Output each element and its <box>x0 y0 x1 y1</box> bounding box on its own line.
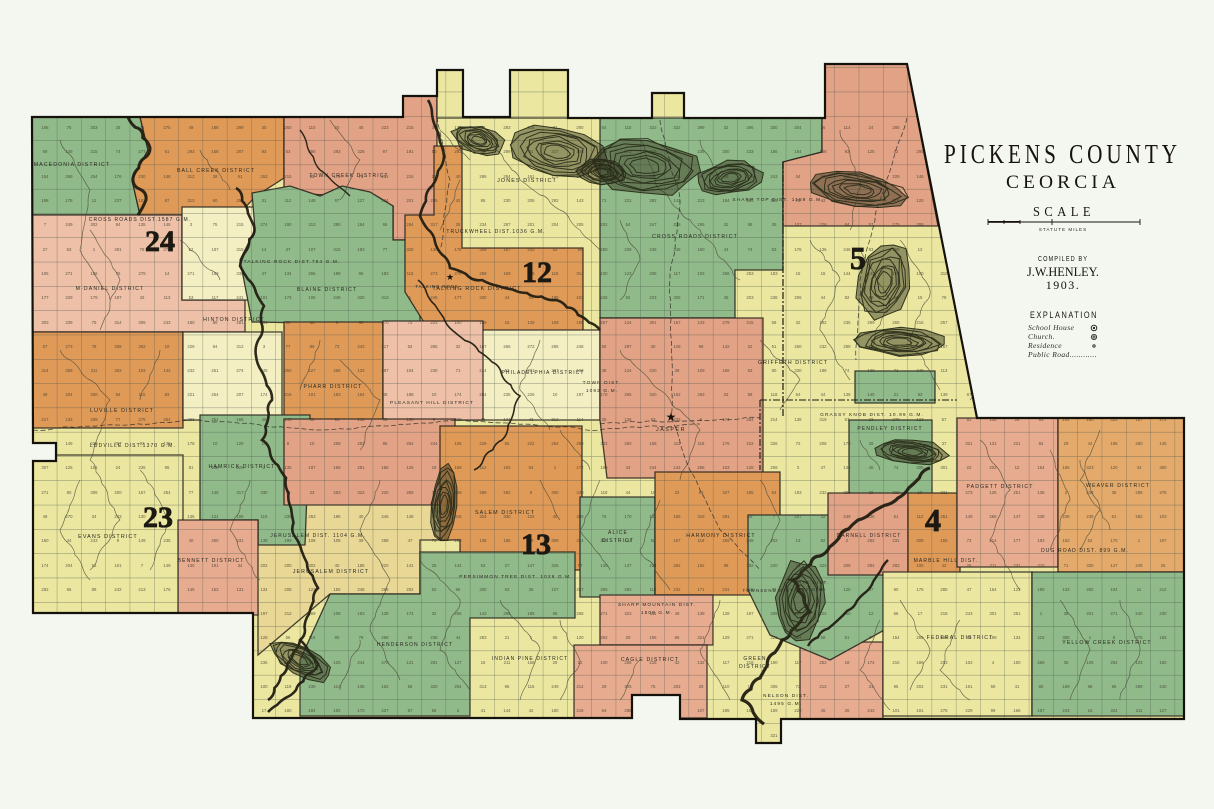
svg-text:84: 84 <box>1039 441 1044 446</box>
svg-text:62: 62 <box>432 587 437 592</box>
svg-text:LUVILLE DISTRICT: LUVILLE DISTRICT <box>90 408 154 414</box>
svg-text:69: 69 <box>748 514 753 519</box>
svg-text:177: 177 <box>1013 538 1021 543</box>
svg-text:231: 231 <box>940 684 948 689</box>
svg-text:77: 77 <box>578 563 583 568</box>
svg-text:171: 171 <box>697 587 705 592</box>
svg-text:112: 112 <box>285 198 292 203</box>
svg-text:101: 101 <box>308 392 316 397</box>
svg-text:288: 288 <box>843 344 851 349</box>
svg-text:17: 17 <box>918 611 923 616</box>
svg-text:206: 206 <box>794 295 802 300</box>
svg-text:128: 128 <box>260 635 268 640</box>
svg-text:193: 193 <box>357 247 365 252</box>
svg-text:166: 166 <box>381 465 389 470</box>
svg-text:226: 226 <box>187 344 195 349</box>
svg-text:76: 76 <box>602 514 607 519</box>
svg-text:119: 119 <box>261 514 268 519</box>
svg-text:174: 174 <box>41 563 49 568</box>
svg-text:147: 147 <box>527 563 535 568</box>
svg-text:232: 232 <box>819 344 827 349</box>
svg-text:133: 133 <box>697 320 705 325</box>
svg-text:176: 176 <box>114 174 122 179</box>
svg-text:301: 301 <box>649 320 657 325</box>
svg-text:315: 315 <box>1037 563 1045 568</box>
svg-text:DISTRICT: DISTRICT <box>602 538 634 544</box>
svg-text:169: 169 <box>503 271 511 276</box>
svg-text:56: 56 <box>432 708 437 713</box>
svg-text:315: 315 <box>236 247 244 252</box>
svg-text:Church.: Church. <box>1028 332 1055 341</box>
svg-text:56: 56 <box>408 684 413 689</box>
svg-text:82: 82 <box>821 538 826 543</box>
svg-text:10: 10 <box>432 392 437 397</box>
svg-text:26: 26 <box>869 490 874 495</box>
svg-text:85: 85 <box>1039 684 1044 689</box>
svg-text:83: 83 <box>967 417 972 422</box>
svg-text:246: 246 <box>649 247 657 252</box>
svg-text:134: 134 <box>1013 635 1021 640</box>
svg-text:284: 284 <box>746 417 754 422</box>
svg-text:158: 158 <box>649 441 657 446</box>
svg-text:27: 27 <box>43 247 48 252</box>
svg-text:314: 314 <box>114 320 122 325</box>
svg-text:120: 120 <box>916 198 924 203</box>
svg-text:164: 164 <box>989 587 997 592</box>
svg-text:293: 293 <box>187 149 195 154</box>
svg-text:86: 86 <box>481 198 486 203</box>
svg-text:JASPER: JASPER <box>656 427 686 433</box>
svg-text:290: 290 <box>576 125 584 130</box>
svg-text:273: 273 <box>965 490 973 495</box>
svg-text:121: 121 <box>406 660 414 665</box>
svg-text:292: 292 <box>503 490 511 495</box>
svg-text:100: 100 <box>454 320 462 325</box>
svg-text:38: 38 <box>1064 611 1069 616</box>
svg-text:160: 160 <box>697 247 705 252</box>
svg-text:330: 330 <box>479 587 487 592</box>
svg-text:213: 213 <box>697 198 705 203</box>
svg-text:197: 197 <box>260 611 268 616</box>
svg-text:192: 192 <box>333 708 341 713</box>
svg-text:216: 216 <box>576 708 584 713</box>
svg-text:281: 281 <box>454 149 462 154</box>
svg-text:47: 47 <box>408 538 413 543</box>
svg-text:156: 156 <box>649 635 657 640</box>
svg-text:44: 44 <box>1137 465 1142 470</box>
svg-text:170: 170 <box>357 708 365 713</box>
svg-text:40: 40 <box>359 514 364 519</box>
svg-text:135: 135 <box>284 465 292 470</box>
svg-text:271: 271 <box>41 490 49 495</box>
svg-text:SCALE: SCALE <box>1033 205 1095 220</box>
svg-text:35: 35 <box>772 222 777 227</box>
svg-text:78: 78 <box>942 295 947 300</box>
svg-text:319: 319 <box>697 514 705 519</box>
svg-text:78: 78 <box>359 635 364 640</box>
svg-text:126: 126 <box>406 465 414 470</box>
svg-text:40: 40 <box>335 563 340 568</box>
svg-text:245: 245 <box>600 295 608 300</box>
svg-text:289: 289 <box>503 149 511 154</box>
svg-text:115: 115 <box>1038 635 1045 640</box>
svg-text:47: 47 <box>967 587 972 592</box>
svg-text:317: 317 <box>236 490 244 495</box>
svg-text:176: 176 <box>722 441 730 446</box>
svg-text:125: 125 <box>843 587 851 592</box>
svg-text:50: 50 <box>432 149 437 154</box>
svg-text:34: 34 <box>796 174 801 179</box>
svg-text:62: 62 <box>1088 538 1093 543</box>
svg-text:235: 235 <box>503 392 511 397</box>
svg-text:261: 261 <box>211 368 219 373</box>
svg-text:115: 115 <box>528 684 535 689</box>
svg-text:271: 271 <box>1110 611 1118 616</box>
svg-text:244: 244 <box>357 660 365 665</box>
svg-text:330: 330 <box>794 368 802 373</box>
svg-text:255: 255 <box>600 587 608 592</box>
svg-text:PENDLEY DISTRICT: PENDLEY DISTRICT <box>857 426 922 432</box>
svg-text:31: 31 <box>262 198 267 203</box>
svg-text:322: 322 <box>673 125 681 130</box>
svg-text:84: 84 <box>116 392 121 397</box>
svg-text:68: 68 <box>772 320 777 325</box>
svg-text:47: 47 <box>821 465 826 470</box>
svg-text:313: 313 <box>381 295 389 300</box>
svg-text:GRASSY KNOB DIST. 10.99 G.M.: GRASSY KNOB DIST. 10.99 G.M. <box>820 412 924 418</box>
svg-text:230: 230 <box>503 198 511 203</box>
svg-text:127: 127 <box>1159 708 1167 713</box>
svg-text:66: 66 <box>894 611 899 616</box>
svg-text:GREEN: GREEN <box>743 656 766 662</box>
svg-text:178: 178 <box>843 441 851 446</box>
svg-text:221: 221 <box>1013 441 1021 446</box>
svg-text:259: 259 <box>770 465 778 470</box>
svg-text:115: 115 <box>552 271 559 276</box>
svg-text:259: 259 <box>1037 660 1045 665</box>
svg-text:49: 49 <box>43 392 48 397</box>
svg-text:58: 58 <box>991 684 996 689</box>
svg-text:313: 313 <box>187 198 195 203</box>
svg-text:279: 279 <box>722 320 730 325</box>
svg-text:147: 147 <box>1110 563 1118 568</box>
svg-text:174: 174 <box>454 392 462 397</box>
svg-text:271: 271 <box>746 635 754 640</box>
svg-text:324: 324 <box>819 563 827 568</box>
svg-text:46: 46 <box>869 465 874 470</box>
svg-text:264: 264 <box>211 392 219 397</box>
svg-text:174: 174 <box>260 392 268 397</box>
svg-text:143: 143 <box>576 198 584 203</box>
svg-text:80: 80 <box>67 490 72 495</box>
svg-text:282: 282 <box>41 587 49 592</box>
svg-text:109: 109 <box>551 320 559 325</box>
svg-text:159: 159 <box>454 465 462 470</box>
svg-text:136: 136 <box>843 392 851 397</box>
svg-text:66: 66 <box>675 635 680 640</box>
svg-text:44: 44 <box>724 247 729 252</box>
svg-text:272: 272 <box>527 344 535 349</box>
svg-text:240: 240 <box>1135 611 1143 616</box>
svg-text:144: 144 <box>503 708 511 713</box>
svg-text:206: 206 <box>697 222 705 227</box>
svg-text:236: 236 <box>138 465 146 470</box>
svg-text:107: 107 <box>551 587 559 592</box>
svg-text:30: 30 <box>262 125 267 130</box>
svg-text:264: 264 <box>163 417 171 422</box>
svg-text:190: 190 <box>284 222 292 227</box>
svg-text:320: 320 <box>430 684 438 689</box>
svg-text:138: 138 <box>794 417 802 422</box>
svg-text:229: 229 <box>965 708 973 713</box>
svg-text:192: 192 <box>746 563 754 568</box>
svg-text:317: 317 <box>430 222 438 227</box>
svg-text:53: 53 <box>286 149 291 154</box>
svg-text:169: 169 <box>333 465 341 470</box>
svg-text:216: 216 <box>406 174 414 179</box>
svg-text:JERUSALEM DIST. 1104 G.M.: JERUSALEM DIST. 1104 G.M. <box>270 533 365 539</box>
svg-text:72: 72 <box>408 320 413 325</box>
svg-text:138: 138 <box>260 538 268 543</box>
svg-text:167: 167 <box>673 320 681 325</box>
svg-text:103: 103 <box>722 465 730 470</box>
svg-text:254: 254 <box>1110 660 1118 665</box>
svg-text:266: 266 <box>308 271 316 276</box>
svg-text:183: 183 <box>770 271 778 276</box>
svg-text:268: 268 <box>381 635 389 640</box>
svg-text:218: 218 <box>940 611 948 616</box>
svg-text:10: 10 <box>310 441 315 446</box>
svg-text:43: 43 <box>529 417 534 422</box>
svg-text:133: 133 <box>65 417 73 422</box>
svg-text:260: 260 <box>211 538 219 543</box>
svg-text:227: 227 <box>381 708 389 713</box>
svg-text:282: 282 <box>1135 514 1143 519</box>
svg-text:148: 148 <box>163 174 171 179</box>
svg-text:162: 162 <box>697 563 705 568</box>
svg-text:55: 55 <box>602 344 607 349</box>
svg-text:306: 306 <box>90 490 98 495</box>
svg-text:CAGLE DISTRICT: CAGLE DISTRICT <box>621 657 679 663</box>
svg-text:330: 330 <box>479 295 487 300</box>
svg-text:249: 249 <box>1135 563 1143 568</box>
svg-text:69: 69 <box>43 149 48 154</box>
svg-text:243: 243 <box>965 611 973 616</box>
svg-text:98: 98 <box>1088 684 1093 689</box>
svg-text:196: 196 <box>600 465 608 470</box>
svg-text:220: 220 <box>770 563 778 568</box>
svg-text:205: 205 <box>576 222 584 227</box>
svg-text:47: 47 <box>262 271 267 276</box>
svg-text:53: 53 <box>189 295 194 300</box>
svg-text:296: 296 <box>746 125 754 130</box>
svg-text:180: 180 <box>187 320 195 325</box>
svg-text:JONES DISTRICT: JONES DISTRICT <box>497 178 557 184</box>
svg-text:75: 75 <box>651 684 656 689</box>
svg-text:242: 242 <box>114 587 122 592</box>
svg-text:220: 220 <box>649 368 657 373</box>
svg-text:230: 230 <box>1159 611 1167 616</box>
svg-text:178: 178 <box>454 247 462 252</box>
svg-text:155: 155 <box>1159 635 1167 640</box>
svg-text:284: 284 <box>867 563 875 568</box>
svg-text:156: 156 <box>673 514 681 519</box>
svg-text:★: ★ <box>666 410 677 424</box>
svg-text:169: 169 <box>1062 684 1070 689</box>
svg-text:146: 146 <box>916 174 924 179</box>
svg-text:18: 18 <box>432 465 437 470</box>
svg-text:254: 254 <box>551 441 559 446</box>
svg-text:129: 129 <box>236 441 244 446</box>
svg-text:149: 149 <box>65 441 73 446</box>
svg-text:257: 257 <box>576 587 584 592</box>
svg-text:166: 166 <box>41 125 49 130</box>
svg-text:49: 49 <box>189 125 194 130</box>
svg-text:202: 202 <box>406 587 414 592</box>
svg-text:330: 330 <box>1086 563 1094 568</box>
svg-text:44: 44 <box>456 635 461 640</box>
svg-text:136: 136 <box>357 684 365 689</box>
svg-text:183: 183 <box>381 271 389 276</box>
svg-text:241: 241 <box>236 295 244 300</box>
svg-text:78: 78 <box>67 125 72 130</box>
svg-text:ALICE: ALICE <box>608 530 628 536</box>
svg-text:94: 94 <box>335 417 340 422</box>
svg-text:23: 23 <box>143 501 173 534</box>
svg-text:86: 86 <box>359 271 364 276</box>
svg-text:259: 259 <box>406 490 414 495</box>
svg-text:216: 216 <box>916 320 924 325</box>
svg-text:128: 128 <box>722 611 730 616</box>
svg-text:176: 176 <box>916 587 924 592</box>
svg-text:160: 160 <box>284 708 292 713</box>
svg-text:PHARR DISTRICT: PHARR DISTRICT <box>304 384 363 390</box>
svg-text:130: 130 <box>867 368 875 373</box>
svg-text:170: 170 <box>1110 538 1118 543</box>
svg-text:COMPILED BY: COMPILED BY <box>1038 254 1088 263</box>
svg-text:12: 12 <box>918 247 923 252</box>
svg-text:INDIAN PINE DISTRICT: INDIAN PINE DISTRICT <box>492 656 568 662</box>
svg-text:230: 230 <box>138 174 146 179</box>
svg-text:191: 191 <box>406 149 414 154</box>
svg-text:223: 223 <box>430 320 438 325</box>
svg-text:148: 148 <box>308 198 316 203</box>
svg-text:BENNETT DISTRICT: BENNETT DISTRICT <box>177 558 244 564</box>
svg-text:263: 263 <box>114 368 122 373</box>
svg-text:324: 324 <box>576 538 584 543</box>
svg-text:71: 71 <box>602 198 607 203</box>
svg-text:48: 48 <box>675 611 680 616</box>
svg-text:213: 213 <box>819 684 827 689</box>
svg-text:232: 232 <box>673 587 681 592</box>
svg-text:268: 268 <box>333 368 341 373</box>
svg-text:265: 265 <box>892 320 900 325</box>
svg-text:218: 218 <box>357 417 365 422</box>
svg-text:44: 44 <box>626 490 631 495</box>
svg-text:53: 53 <box>772 247 777 252</box>
svg-text:250: 250 <box>90 392 98 397</box>
svg-text:238: 238 <box>770 295 778 300</box>
svg-text:215: 215 <box>746 320 754 325</box>
svg-text:291: 291 <box>114 247 122 252</box>
svg-text:21: 21 <box>505 635 510 640</box>
svg-text:101: 101 <box>114 563 122 568</box>
svg-text:212: 212 <box>284 611 292 616</box>
svg-text:187: 187 <box>503 247 511 252</box>
svg-text:150: 150 <box>576 320 584 325</box>
svg-text:221: 221 <box>624 198 632 203</box>
svg-text:113: 113 <box>650 587 657 592</box>
svg-text:285: 285 <box>551 344 559 349</box>
svg-text:259: 259 <box>479 490 487 495</box>
svg-text:301: 301 <box>989 611 997 616</box>
svg-text:202: 202 <box>673 684 681 689</box>
svg-text:63: 63 <box>553 247 558 252</box>
svg-text:74: 74 <box>748 247 753 252</box>
svg-text:229: 229 <box>892 174 900 179</box>
svg-text:56: 56 <box>408 635 413 640</box>
svg-text:73: 73 <box>335 344 340 349</box>
svg-text:321: 321 <box>965 441 973 446</box>
svg-text:TOWNSEND DIST.: TOWNSEND DIST. <box>743 588 796 593</box>
svg-text:136: 136 <box>187 514 195 519</box>
svg-text:TOWN DIST.: TOWN DIST. <box>583 380 622 386</box>
svg-text:193: 193 <box>794 490 802 495</box>
svg-text:123: 123 <box>624 271 632 276</box>
svg-text:151: 151 <box>90 465 98 470</box>
svg-text:161: 161 <box>965 684 973 689</box>
svg-text:107: 107 <box>308 247 316 252</box>
svg-text:143: 143 <box>479 611 487 616</box>
svg-text:87: 87 <box>408 708 413 713</box>
svg-text:106: 106 <box>41 271 49 276</box>
svg-text:TRUCKWHEEL DIST.1036 G.M.: TRUCKWHEEL DIST.1036 G.M. <box>446 229 545 235</box>
svg-text:80: 80 <box>335 635 340 640</box>
svg-text:78: 78 <box>92 344 97 349</box>
svg-text:180: 180 <box>551 708 559 713</box>
svg-text:77: 77 <box>383 247 388 252</box>
svg-text:68: 68 <box>286 320 291 325</box>
svg-text:257: 257 <box>940 320 948 325</box>
svg-text:330: 330 <box>576 490 584 495</box>
svg-text:266: 266 <box>722 271 730 276</box>
svg-text:127: 127 <box>357 198 365 203</box>
svg-text:312: 312 <box>236 344 244 349</box>
svg-text:262: 262 <box>138 344 146 349</box>
svg-text:232: 232 <box>819 490 827 495</box>
svg-text:125: 125 <box>867 149 875 154</box>
svg-text:62: 62 <box>408 344 413 349</box>
svg-text:269: 269 <box>65 174 73 179</box>
svg-text:126: 126 <box>454 441 462 446</box>
svg-text:302: 302 <box>308 563 316 568</box>
svg-text:299: 299 <box>697 125 705 130</box>
svg-text:Residence: Residence <box>1027 341 1062 350</box>
svg-text:308: 308 <box>576 514 584 519</box>
svg-text:32: 32 <box>821 514 826 519</box>
svg-text:75: 75 <box>213 222 218 227</box>
svg-text:98: 98 <box>383 441 388 446</box>
svg-text:283: 283 <box>503 125 511 130</box>
svg-text:115: 115 <box>625 125 632 130</box>
svg-text:103: 103 <box>576 295 584 300</box>
svg-text:EVANS DISTRICT: EVANS DISTRICT <box>78 534 138 540</box>
svg-text:175: 175 <box>892 222 900 227</box>
svg-text:64: 64 <box>602 708 607 713</box>
svg-text:258: 258 <box>576 611 584 616</box>
svg-text:206: 206 <box>527 198 535 203</box>
svg-text:Public Road............: Public Road............ <box>1027 350 1097 359</box>
